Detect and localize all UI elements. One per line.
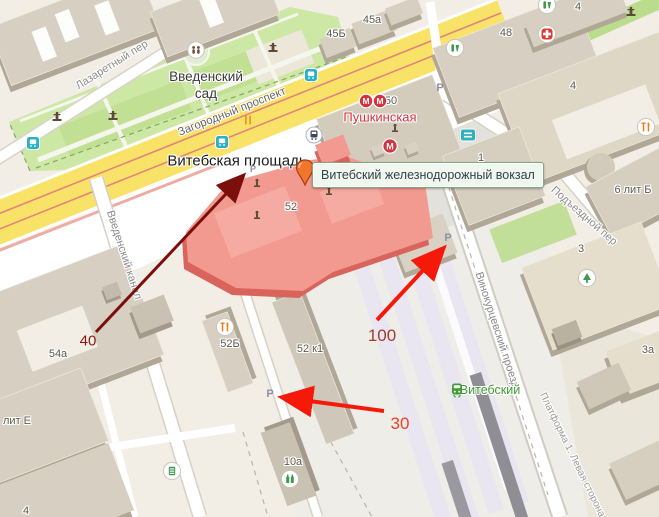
- medical-icon[interactable]: [538, 25, 557, 44]
- monument-icon: [252, 210, 263, 221]
- fountain-icon: [107, 110, 119, 122]
- atm-icon[interactable]: [460, 128, 477, 142]
- restaurant-icon[interactable]: [637, 118, 656, 137]
- metro-icon[interactable]: М: [359, 94, 374, 109]
- monument-icon: [390, 123, 401, 134]
- ev-charging-icon[interactable]: [281, 470, 300, 489]
- fountain-icon: [51, 111, 63, 123]
- restaurant-icon[interactable]: [216, 318, 235, 337]
- railway-station-icon[interactable]: [305, 126, 323, 144]
- fountain-icon: [267, 42, 279, 54]
- playground-icon[interactable]: [187, 41, 205, 59]
- svg-text:М: М: [362, 96, 369, 106]
- svg-text:М: М: [386, 141, 394, 151]
- rail-stop-icon[interactable]: [450, 382, 465, 398]
- tram-stop-icon[interactable]: [304, 68, 318, 82]
- map-base-layer: [0, 0, 659, 517]
- kiosk-icon[interactable]: [163, 462, 182, 481]
- bus-stop-icon[interactable]: [26, 136, 40, 150]
- annotation-label-100: 100: [368, 326, 396, 346]
- fountain-icon: [625, 6, 637, 18]
- cafe-icon[interactable]: [242, 114, 254, 126]
- metro-icon[interactable]: М: [382, 138, 398, 154]
- annotation-label-40: 40: [80, 333, 97, 350]
- tree-icon[interactable]: [578, 269, 597, 288]
- metro-icon[interactable]: М: [373, 94, 388, 109]
- annotation-label-30: 30: [391, 414, 410, 434]
- shop-icon[interactable]: [446, 39, 465, 58]
- tram-stop-icon[interactable]: [215, 135, 229, 149]
- svg-text:М: М: [376, 96, 383, 106]
- tooltip-text: Витебский железнодорожный вокзал: [321, 168, 535, 182]
- monument-icon: [252, 178, 263, 189]
- map-tooltip: Витебский железнодорожный вокзал: [312, 162, 544, 188]
- shop-icon[interactable]: [538, 0, 557, 15]
- map-canvas[interactable]: Лазаретный пер Загородный проспект Введе…: [0, 0, 659, 517]
